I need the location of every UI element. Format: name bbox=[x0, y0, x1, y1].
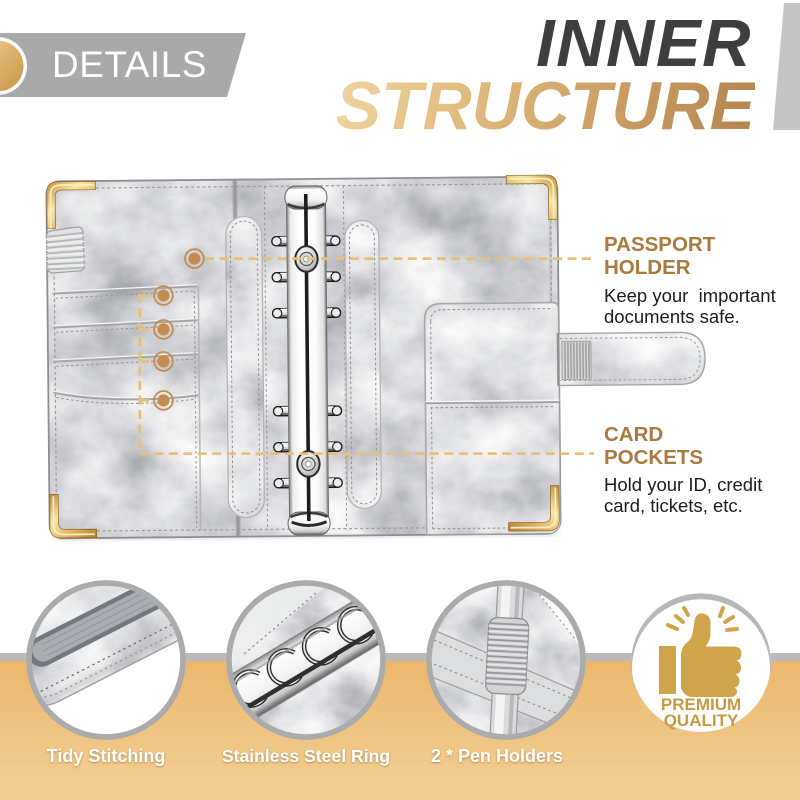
svg-text:QUALITY: QUALITY bbox=[664, 711, 739, 730]
